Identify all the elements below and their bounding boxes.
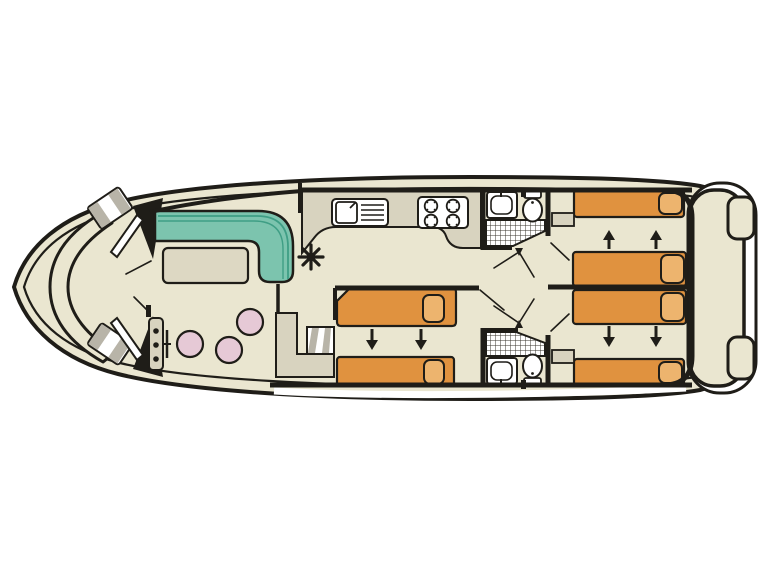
toilet-top-flush <box>531 201 534 204</box>
companionway-steps <box>307 327 334 354</box>
stern-step-top <box>728 197 754 239</box>
asterisk-symbol <box>299 245 323 269</box>
toilet-bottom-flush <box>531 372 534 375</box>
stool <box>177 331 203 357</box>
helm-instrument <box>153 328 159 334</box>
helm-instrument <box>153 356 159 362</box>
boat-deck-plan-canvas <box>0 0 768 576</box>
helm-instrument <box>153 342 159 348</box>
stern-step-bottom <box>728 337 754 379</box>
stern-deck-group <box>688 183 756 393</box>
washbasin-bottom-bowl <box>491 362 512 380</box>
aft-cabinet-bottom <box>552 350 574 363</box>
washbasin-top-bowl <box>491 196 512 214</box>
aft-bottom-pillow-inner <box>661 293 684 321</box>
stool <box>237 309 263 335</box>
stool <box>216 337 242 363</box>
mid-cabin-pillow-top <box>423 295 444 322</box>
mid-cabin-pillow-bottom <box>424 360 444 384</box>
saloon-table <box>163 248 248 283</box>
aft-cabinet-top <box>552 213 574 226</box>
aft-top-pillow-outer <box>659 193 682 214</box>
aft-top-pillow-inner <box>661 255 684 283</box>
